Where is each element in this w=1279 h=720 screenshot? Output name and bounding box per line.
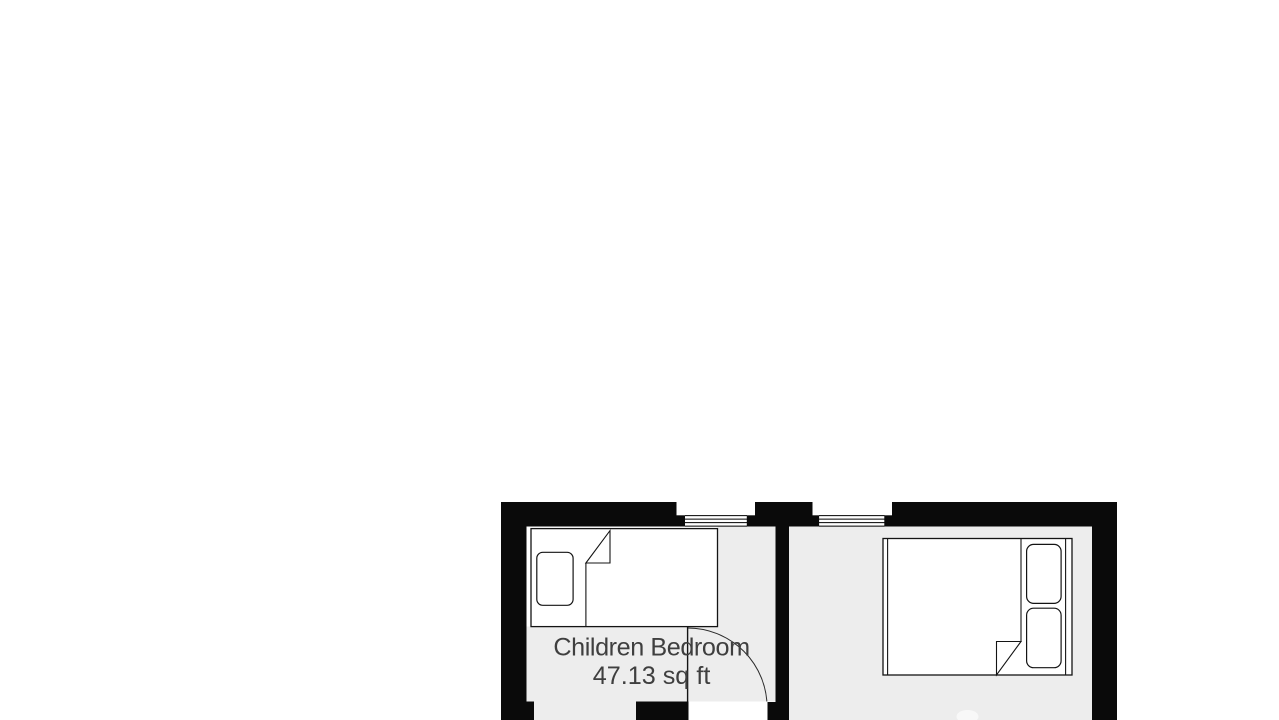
svg-text:47.13 sq ft: 47.13 sq ft <box>593 662 711 690</box>
svg-text:Children Bedroom: Children Bedroom <box>553 633 749 661</box>
